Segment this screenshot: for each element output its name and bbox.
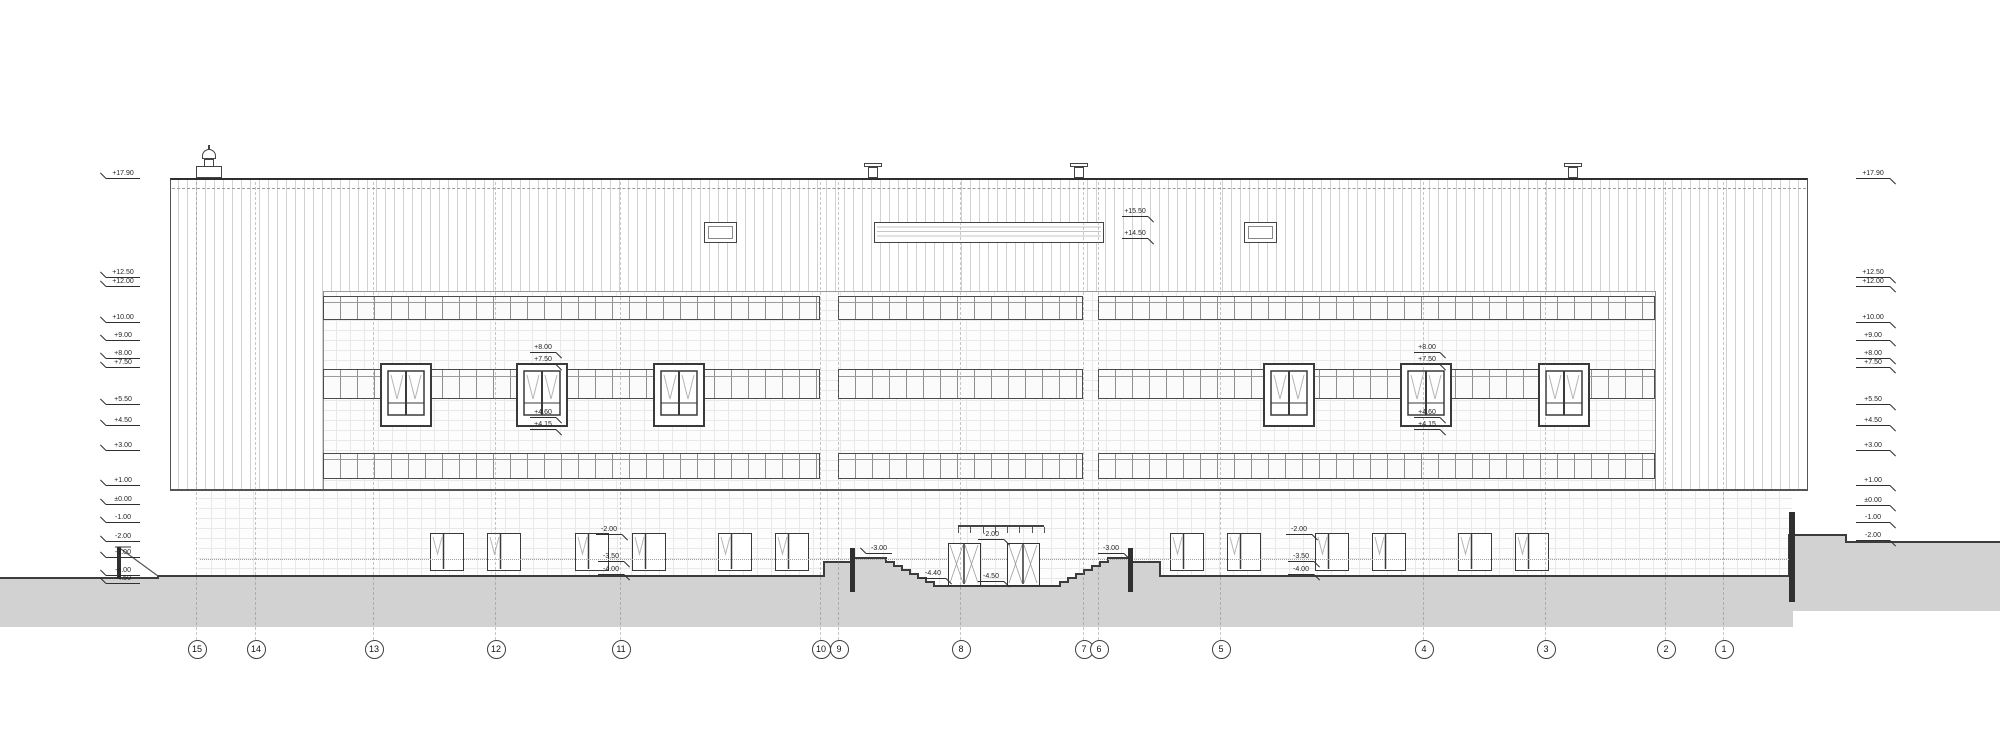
grid-bubble-10: 10 — [812, 640, 831, 659]
ribbon-window-band — [323, 296, 820, 320]
level-marker-right: -2.00 — [1856, 531, 1890, 541]
facade-annotation: -4.00 — [598, 565, 624, 575]
level-label: -4.40 — [920, 570, 946, 578]
level-tick — [1890, 425, 1896, 431]
level-marker-right: +9.00 — [1856, 331, 1890, 341]
level-marker-left: +4.50 — [106, 416, 140, 426]
level-label: +12.50 — [1856, 269, 1890, 277]
level-marker-right: +3.00 — [1856, 441, 1890, 451]
level-label: +12.50 — [106, 269, 140, 277]
door-leaves — [949, 544, 979, 584]
basement-window-glazing — [1516, 534, 1547, 569]
level-label: -3.00 — [1098, 545, 1124, 553]
level-tick — [1890, 178, 1896, 184]
level-label: +7.50 — [530, 356, 556, 364]
level-label: +17.90 — [106, 170, 140, 178]
grid-line — [820, 182, 821, 640]
level-label: +10.00 — [1856, 314, 1890, 322]
level-label: +7.50 — [1414, 356, 1440, 364]
retaining-wall — [1128, 548, 1133, 592]
grid-line — [1665, 182, 1666, 640]
basement-window — [430, 533, 464, 571]
level-tick — [1890, 277, 1896, 283]
basement-window-glazing — [776, 534, 807, 569]
grid-bubble-14: 14 — [247, 640, 266, 659]
roof-vent-stack — [1074, 167, 1084, 178]
level-label: -1.00 — [106, 514, 140, 522]
level-label: -4.00 — [1288, 566, 1314, 574]
roof-window — [1244, 222, 1277, 243]
dormer-glazing — [660, 370, 698, 416]
level-marker-left: +17.90 — [106, 169, 140, 179]
level-label: -2.00 — [978, 531, 1004, 539]
level-tick — [1890, 286, 1896, 292]
level-label: -2.00 — [596, 526, 622, 534]
level-tick — [1890, 505, 1896, 511]
basement-window-glazing — [488, 534, 519, 569]
level-marker-right: +10.00 — [1856, 313, 1890, 323]
grid-line — [255, 182, 256, 640]
facade-annotation: -4.00 — [1288, 565, 1314, 575]
facade-annotation: +8.00 — [1414, 343, 1440, 353]
basement-window-glazing — [633, 534, 664, 569]
level-label: +7.50 — [1856, 359, 1890, 367]
basement-window-glazing — [1171, 534, 1202, 569]
grid-bubble-9: 9 — [830, 640, 849, 659]
level-label: -4.00 — [598, 566, 624, 574]
level-tick — [1890, 367, 1896, 373]
level-label: +5.50 — [1856, 396, 1890, 404]
grid-line — [838, 182, 839, 640]
grid-line — [495, 182, 496, 640]
level-label: +7.50 — [106, 359, 140, 367]
level-label: +4.60 — [530, 409, 556, 417]
retaining-wall — [850, 548, 855, 592]
level-tick — [1890, 485, 1896, 491]
entrance-door — [948, 543, 981, 586]
basement-window-glazing — [1459, 534, 1490, 569]
level-label: -3.00 — [106, 549, 140, 557]
grid-bubble-13: 13 — [365, 640, 384, 659]
canopy-tick — [1032, 527, 1033, 533]
roof-window — [704, 222, 737, 243]
level-tick — [1890, 322, 1896, 328]
basement-window-glazing — [1228, 534, 1259, 569]
grid-bubble-4: 4 — [1415, 640, 1434, 659]
level-label: -3.50 — [598, 553, 624, 561]
basement-window-glazing — [1316, 534, 1347, 569]
grid-bubble-12: 12 — [487, 640, 506, 659]
grid-line — [196, 182, 197, 640]
facade-annotation: -3.50 — [598, 552, 624, 562]
level-label: +12.00 — [1856, 278, 1890, 286]
canopy-tick — [1007, 527, 1008, 533]
grid-line — [1083, 182, 1084, 640]
facade-annotation: +4.60 — [530, 408, 556, 418]
canopy-tick — [1019, 527, 1020, 533]
basement-window — [1458, 533, 1492, 571]
facade-annotation: -3.00 — [1098, 544, 1124, 554]
level-marker-left: +5.50 — [106, 395, 140, 405]
facade-annotation: +7.50 — [1414, 355, 1440, 365]
door-leaves — [1008, 544, 1038, 584]
facade-annotation: -2.00 — [596, 525, 622, 535]
level-marker-left: +9.00 — [106, 331, 140, 341]
level-label: +8.00 — [530, 344, 556, 352]
level-tick — [1890, 340, 1896, 346]
grid-line — [1545, 182, 1546, 640]
level-marker-left: ±0.00 — [106, 495, 140, 505]
level-marker-right: +4.50 — [1856, 416, 1890, 426]
level-marker-right: +1.00 — [1856, 476, 1890, 486]
level-label: +4.15 — [1414, 421, 1440, 429]
basement-window — [1227, 533, 1261, 571]
level-marker-left: -2.00 — [106, 532, 140, 542]
dormer-glazing — [1545, 370, 1583, 416]
window-transom-line — [324, 302, 819, 303]
level-tick — [1890, 540, 1896, 546]
level-label: -2.00 — [1286, 526, 1312, 534]
level-label: +5.50 — [106, 396, 140, 404]
cladding-bottom-line — [323, 291, 1655, 292]
roof-dashdot-line — [172, 188, 1806, 189]
dormer-window — [1263, 363, 1315, 427]
facade-annotation: +4.60 — [1414, 408, 1440, 418]
level-label: +15.50 — [1122, 208, 1148, 216]
facade-annotation: +4.15 — [1414, 420, 1440, 430]
level-marker-left: +1.00 — [106, 476, 140, 486]
level-label: +14.50 — [1122, 230, 1148, 238]
elevation-sheet: 151413121110987654321+17.90+12.50+12.00+… — [0, 0, 2000, 745]
level-marker-right: -1.00 — [1856, 513, 1890, 523]
facade-annotation: -3.00 — [866, 544, 892, 554]
grid-bubble-2: 2 — [1657, 640, 1676, 659]
basement-window — [487, 533, 521, 571]
end-bay-edge-right — [1655, 291, 1656, 490]
grid-line — [1220, 182, 1221, 640]
grid-bubble-15: 15 — [188, 640, 207, 659]
basement-window — [718, 533, 752, 571]
grid-line — [960, 182, 961, 640]
grid-line — [373, 182, 374, 640]
basement-window-glazing — [719, 534, 750, 569]
facade-annotation: -2.00 — [1286, 525, 1312, 535]
retaining-wall — [1789, 512, 1795, 602]
level-label: +1.00 — [1856, 477, 1890, 485]
dormer-window — [653, 363, 705, 427]
roof-window-strip — [874, 222, 1104, 243]
roof-strip-louvers — [877, 225, 1101, 240]
grid-bubble-6: 6 — [1090, 640, 1109, 659]
level-label: +4.50 — [106, 417, 140, 425]
level-label: +4.15 — [530, 421, 556, 429]
facade-annotation: +4.15 — [530, 420, 556, 430]
ribbon-window-band — [323, 453, 820, 479]
basement-window — [1515, 533, 1549, 571]
level-label: +8.00 — [1856, 350, 1890, 358]
grid-bubble-11: 11 — [612, 640, 631, 659]
level-label: +9.00 — [1856, 332, 1890, 340]
window-transom-line — [1099, 459, 1654, 460]
ribbon-window-band — [1098, 453, 1655, 479]
basement-window — [1170, 533, 1204, 571]
level-marker-left: +3.00 — [106, 441, 140, 451]
grid-line — [1723, 182, 1724, 640]
level-label: +1.00 — [106, 477, 140, 485]
grid-bubble-1: 1 — [1715, 640, 1734, 659]
level-label: +9.00 — [106, 332, 140, 340]
basement-window-glazing — [1373, 534, 1404, 569]
level-marker-left: -4.50 — [106, 574, 140, 584]
roof-vent-stack — [868, 167, 878, 178]
level-label: +8.00 — [106, 350, 140, 358]
level-label: -4.50 — [106, 575, 140, 583]
window-transom-line — [1099, 302, 1654, 303]
level-label: +4.50 — [1856, 417, 1890, 425]
facade-annotation: +8.00 — [530, 343, 556, 353]
grid-bubble-5: 5 — [1212, 640, 1231, 659]
grid-bubble-8: 8 — [952, 640, 971, 659]
level-marker-right: ±0.00 — [1856, 496, 1890, 506]
grid-line — [1098, 182, 1099, 640]
basement-window — [1372, 533, 1406, 571]
basement-window — [775, 533, 809, 571]
chimney-base — [196, 166, 222, 178]
level-marker-left: -3.00 — [106, 548, 140, 558]
level-marker-left: +10.00 — [106, 313, 140, 323]
canopy-tick — [1044, 527, 1045, 533]
level-label: ±0.00 — [106, 496, 140, 504]
terrain-dotted-line — [200, 559, 1789, 560]
level-marker-left: +7.50 — [106, 358, 140, 368]
level-marker-right: +7.50 — [1856, 358, 1890, 368]
level-label: +4.60 — [1414, 409, 1440, 417]
level-marker-right: +17.90 — [1856, 169, 1890, 179]
level-label: -1.00 — [1856, 514, 1890, 522]
level-label: -2.00 — [1856, 532, 1890, 540]
basement-window — [1315, 533, 1349, 571]
roof-window-pane — [708, 226, 733, 239]
dormer-window — [380, 363, 432, 427]
level-label: -3.00 — [866, 545, 892, 553]
chimney-cap — [202, 149, 216, 159]
facade-annotation: -2.00 — [978, 530, 1004, 540]
ribbon-window-band — [1098, 296, 1655, 320]
entrance-door — [1007, 543, 1040, 586]
level-tick — [1890, 450, 1896, 456]
facade-annotation: +15.50 — [1122, 207, 1148, 217]
facade-annotation: +14.50 — [1122, 229, 1148, 239]
level-label: +17.90 — [1856, 170, 1890, 178]
roof-window-pane — [1248, 226, 1273, 239]
level-tick — [1890, 404, 1896, 410]
level-marker-left: -1.00 — [106, 513, 140, 523]
basement-window — [632, 533, 666, 571]
dormer-glazing — [387, 370, 425, 416]
level-marker-left: +12.00 — [106, 277, 140, 287]
level-label: +10.00 — [106, 314, 140, 322]
level-label: +8.00 — [1414, 344, 1440, 352]
level-marker-right: +12.00 — [1856, 277, 1890, 287]
dormer-glazing — [1270, 370, 1308, 416]
facade-annotation: -4.50 — [978, 572, 1004, 582]
canopy-tick — [958, 527, 959, 533]
level-marker-right: +5.50 — [1856, 395, 1890, 405]
level-tick — [1890, 522, 1896, 528]
facade-annotation: +7.50 — [530, 355, 556, 365]
level-label: -2.00 — [106, 533, 140, 541]
grid-bubble-3: 3 — [1537, 640, 1556, 659]
window-transom-line — [324, 459, 819, 460]
canopy-tick — [970, 527, 971, 533]
level-label: -3.50 — [1288, 553, 1314, 561]
level-label: ±0.00 — [1856, 497, 1890, 505]
level-label: +3.00 — [1856, 442, 1890, 450]
facade-annotation: -3.50 — [1288, 552, 1314, 562]
level-tick — [1890, 358, 1896, 364]
level-label: +12.00 — [106, 278, 140, 286]
facade-annotation: -4.40 — [920, 569, 946, 579]
level-label: -4.50 — [978, 573, 1004, 581]
basement-window-glazing — [431, 534, 462, 569]
level-label: +3.00 — [106, 442, 140, 450]
roof-vent-stack — [1568, 167, 1578, 178]
